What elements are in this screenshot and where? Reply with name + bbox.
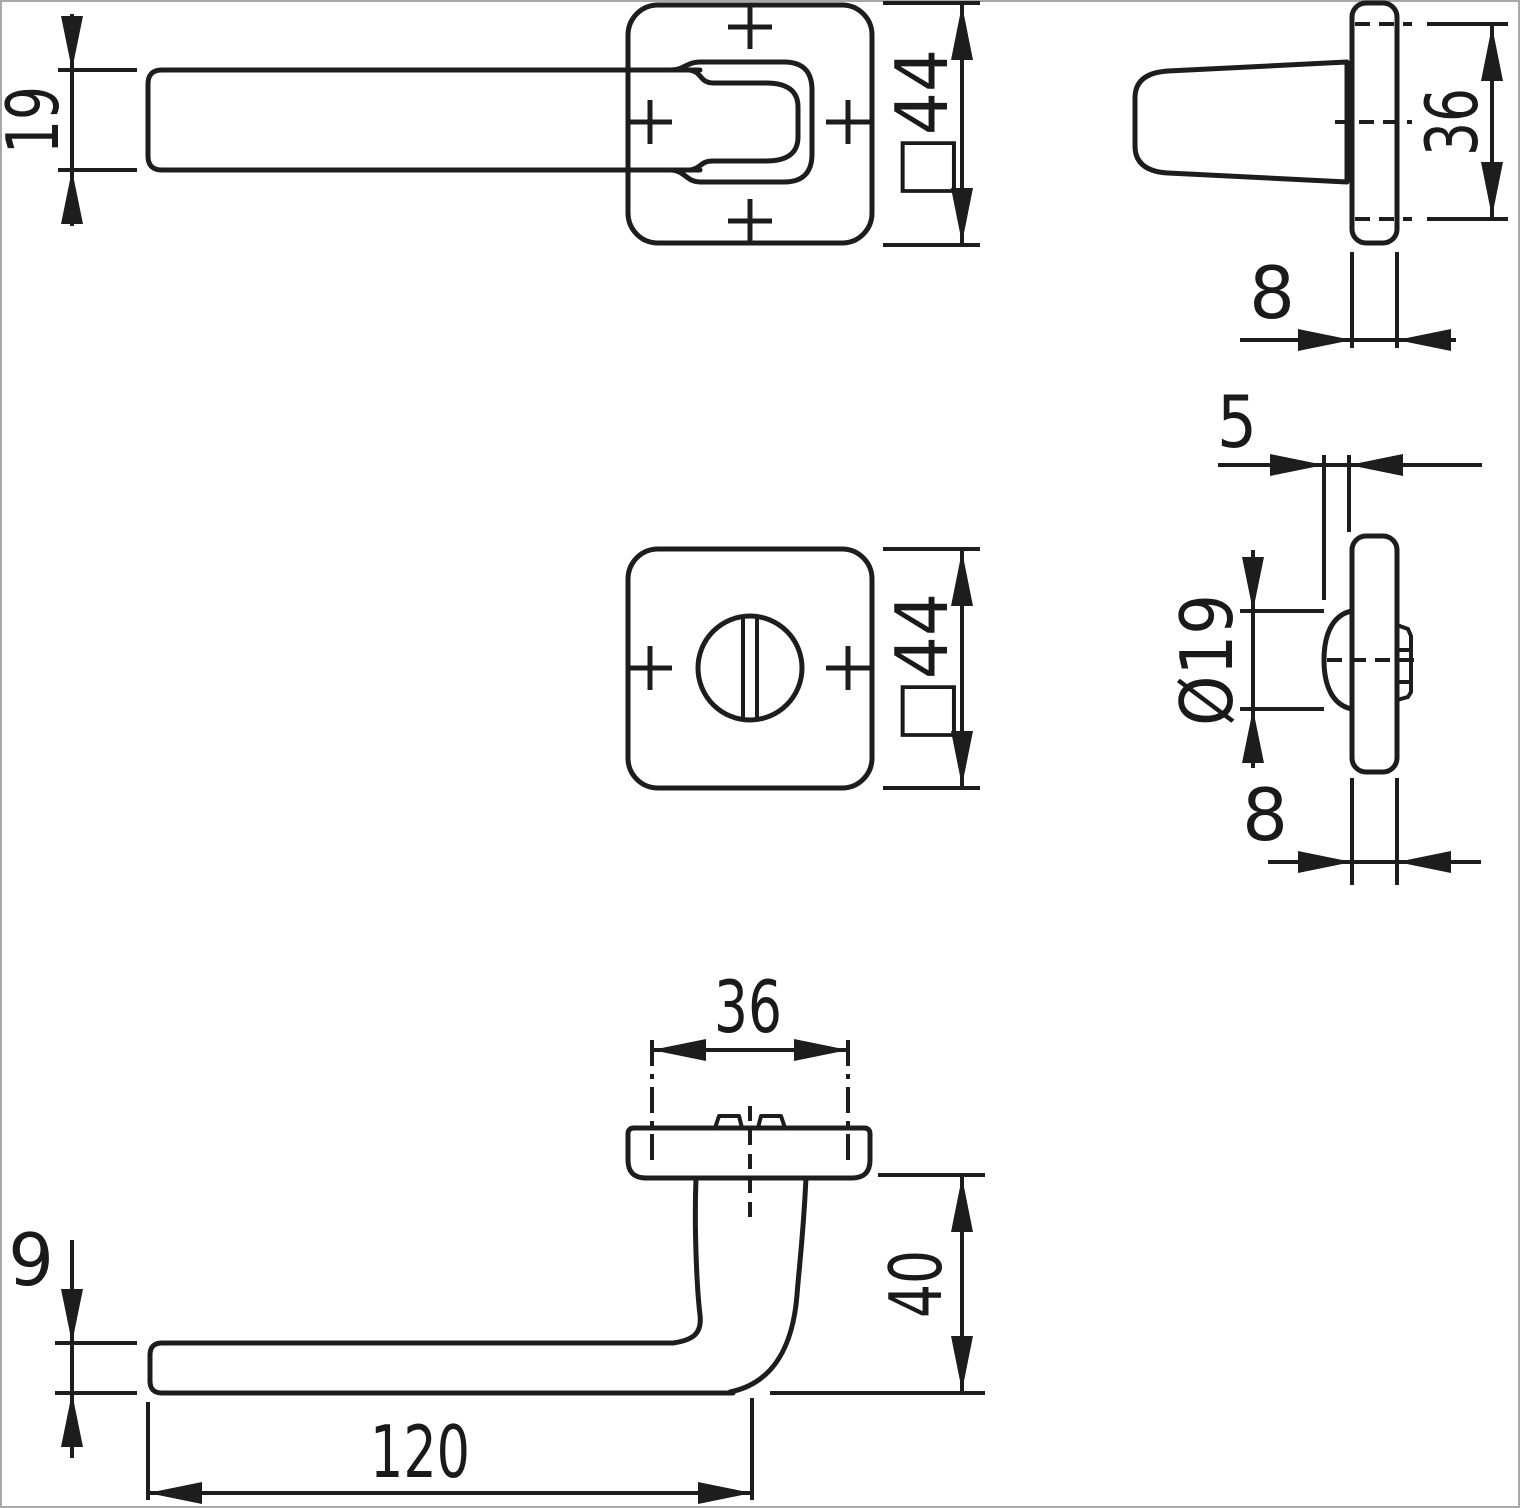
fixing-cross-left — [628, 100, 672, 144]
dim-label-rosette-depth-middle: 8 — [1242, 773, 1288, 857]
arrowhead — [1481, 26, 1503, 81]
view-lever-top: 19 □44 — [0, 3, 980, 245]
arrowhead — [794, 1039, 848, 1061]
dim-label-lever-length: 120 — [370, 1410, 470, 1494]
thumbturn-circle — [698, 616, 802, 720]
dim-label-lever-width: 19 — [0, 86, 75, 154]
dim-grip-span: 36 — [1410, 24, 1508, 219]
arrowhead — [951, 1336, 973, 1391]
dim-rosette-depth-top: 8 — [1240, 251, 1456, 351]
dim-lever-length: 120 — [148, 1398, 752, 1504]
dim-label-rosette-depth-top: 8 — [1249, 251, 1295, 335]
arrowhead — [1397, 851, 1451, 873]
arrowhead — [1397, 329, 1451, 351]
dim-label-projection: 40 — [874, 1250, 958, 1318]
arrowhead — [1298, 851, 1352, 873]
neck-left-outline — [673, 1178, 700, 1343]
arrowhead — [61, 170, 83, 224]
grip-outline — [1135, 62, 1347, 182]
dim-label-grip-span: 36 — [1410, 88, 1494, 156]
fixing-cross-right — [826, 100, 870, 144]
rosette-side-outline — [1352, 536, 1397, 772]
lever-bar-outline — [150, 1343, 733, 1393]
arrowhead — [1481, 162, 1503, 217]
dim-label-knob-offset: 5 — [1217, 380, 1257, 464]
dim-lever-width: 19 — [0, 14, 137, 226]
dim-label-lever-thickness: 9 — [8, 1218, 54, 1302]
view-turn-side: 5 Ø19 8 — [1165, 380, 1482, 885]
lever-neck-outer-outline — [670, 62, 812, 182]
arrowhead — [951, 1177, 973, 1232]
arrowhead — [698, 1482, 752, 1504]
arrowhead — [61, 16, 83, 70]
arrowhead — [61, 1393, 83, 1447]
neck-right-outline — [730, 1178, 806, 1392]
dim-label-rosette-size-middle: □44 — [880, 593, 964, 743]
fixing-cross-left — [628, 646, 672, 690]
dim-label-fixing-span: 36 — [714, 965, 782, 1049]
fixing-cross-bottom — [728, 199, 772, 243]
arrowhead — [61, 1289, 83, 1343]
technical-drawing-canvas: 19 □44 36 — [0, 0, 1520, 1508]
fixing-cross-right — [826, 646, 870, 690]
lever-neck-inner-outline — [690, 70, 798, 170]
arrowhead — [148, 1482, 202, 1504]
dim-lever-thickness: 9 — [8, 1218, 137, 1458]
view-turn-front: □44 — [628, 549, 980, 788]
dim-knob-diameter: Ø19 — [1165, 550, 1324, 768]
view-grip-side: 36 8 — [1135, 3, 1508, 351]
arrowhead — [1270, 454, 1324, 476]
arrowhead — [652, 1039, 706, 1061]
arrowhead — [1349, 454, 1403, 476]
arrowhead — [1298, 329, 1352, 351]
dim-rosette-depth-middle: 8 — [1242, 773, 1481, 885]
dim-label-rosette-size-top: □44 — [880, 49, 964, 199]
image-border — [1, 1, 1519, 1507]
dim-rosette-size-middle: □44 — [880, 549, 980, 788]
view-lever-front: 36 9 40 — [8, 965, 985, 1504]
fixing-cross-top — [728, 7, 772, 49]
lever-bar-outline — [148, 70, 700, 170]
dim-label-knob-diameter: Ø19 — [1165, 594, 1249, 726]
thumbturn-slot — [743, 618, 757, 718]
dim-rosette-size-top: □44 — [880, 3, 980, 245]
